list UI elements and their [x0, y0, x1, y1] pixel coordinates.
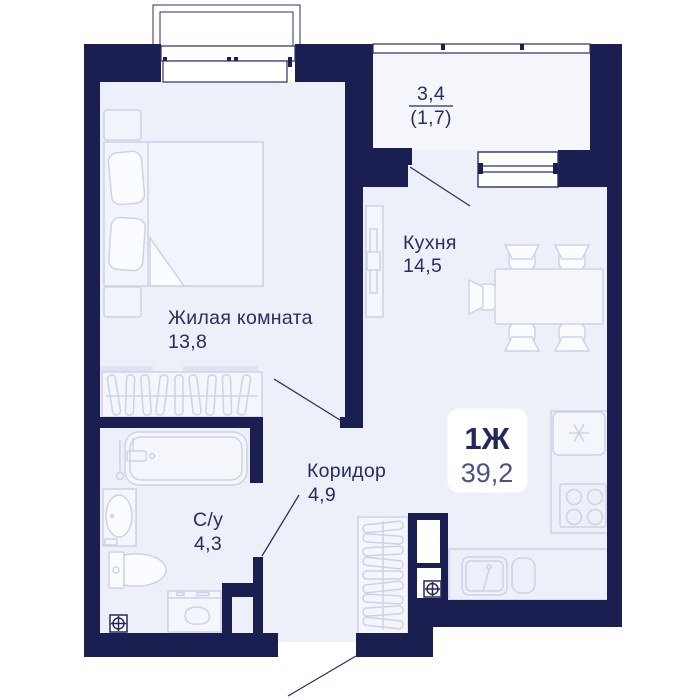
wall-bathroom-top [100, 417, 263, 428]
wall-niche [417, 520, 440, 563]
balcony-glazing [373, 44, 590, 53]
kitchen-label: Кухня [403, 232, 457, 254]
kitchen-cabinet [366, 206, 383, 317]
pillow [108, 151, 145, 206]
dining-table [495, 269, 603, 324]
wall-balcony-kitchen [363, 148, 412, 165]
balcony-area-total: 3,4 [417, 83, 445, 105]
kitchen-area: 14,5 [403, 255, 442, 277]
washing-machine [168, 591, 221, 632]
nightstand [104, 287, 141, 317]
bathroom-area: 4,3 [194, 533, 222, 555]
wall-living-kitchen-foot [340, 417, 363, 428]
living-room-window [161, 46, 295, 82]
shelf [98, 366, 153, 371]
entrance-door-swing [288, 656, 356, 696]
living-room-area: 13,8 [168, 331, 207, 353]
bathtub [117, 432, 248, 485]
entry-threshold [278, 633, 356, 642]
wall-bathroom-right [253, 557, 263, 635]
floor-plan: Жилая комната 13,8 Кухня 14,5 Коридор 4,… [0, 0, 700, 700]
wall-left [84, 44, 100, 657]
bathroom-label: С/у [193, 509, 223, 531]
balcony-area-counted: (1,7) [410, 107, 452, 129]
corridor-wardrobe [358, 517, 408, 634]
wall-shaft [222, 597, 232, 635]
wall-connector [408, 600, 433, 657]
wall-balcony-right [590, 44, 622, 150]
kitchen-balcony-window [478, 152, 558, 187]
living-room-label: Жилая комната [168, 307, 313, 329]
unit-type: 1Ж [464, 421, 510, 456]
chair [469, 280, 497, 314]
balcony-floor [373, 53, 590, 150]
corridor-label: Коридор [307, 460, 386, 482]
unit-total-area: 39,2 [461, 458, 514, 488]
wall-shaft [222, 583, 253, 597]
floor-plan-drawing: Жилая комната 13,8 Кухня 14,5 Коридор 4,… [0, 0, 700, 700]
ventilation-icon [424, 581, 441, 597]
wall-kitchen-bottom [430, 600, 622, 627]
living-room-wardrobe [98, 366, 262, 417]
wall-bathroom-right [250, 428, 263, 483]
nightstand [104, 110, 141, 140]
unit-badge: 1Ж 39,2 [447, 408, 528, 493]
pillow [108, 217, 146, 271]
wall-balcony-kitchen [363, 165, 408, 187]
wall-balcony-kitchen [558, 150, 622, 187]
chair [505, 245, 539, 270]
bathroom-sink [103, 489, 136, 546]
wall-bottom [84, 633, 278, 657]
shelf [183, 366, 258, 371]
ventilation-icon [110, 615, 127, 632]
chair [555, 323, 589, 351]
chair [555, 245, 589, 270]
chair [505, 323, 539, 351]
wall-top [84, 44, 161, 82]
corridor-area: 4,9 [308, 484, 336, 506]
wall-living-kitchen [345, 44, 363, 428]
wall-right [607, 150, 622, 627]
